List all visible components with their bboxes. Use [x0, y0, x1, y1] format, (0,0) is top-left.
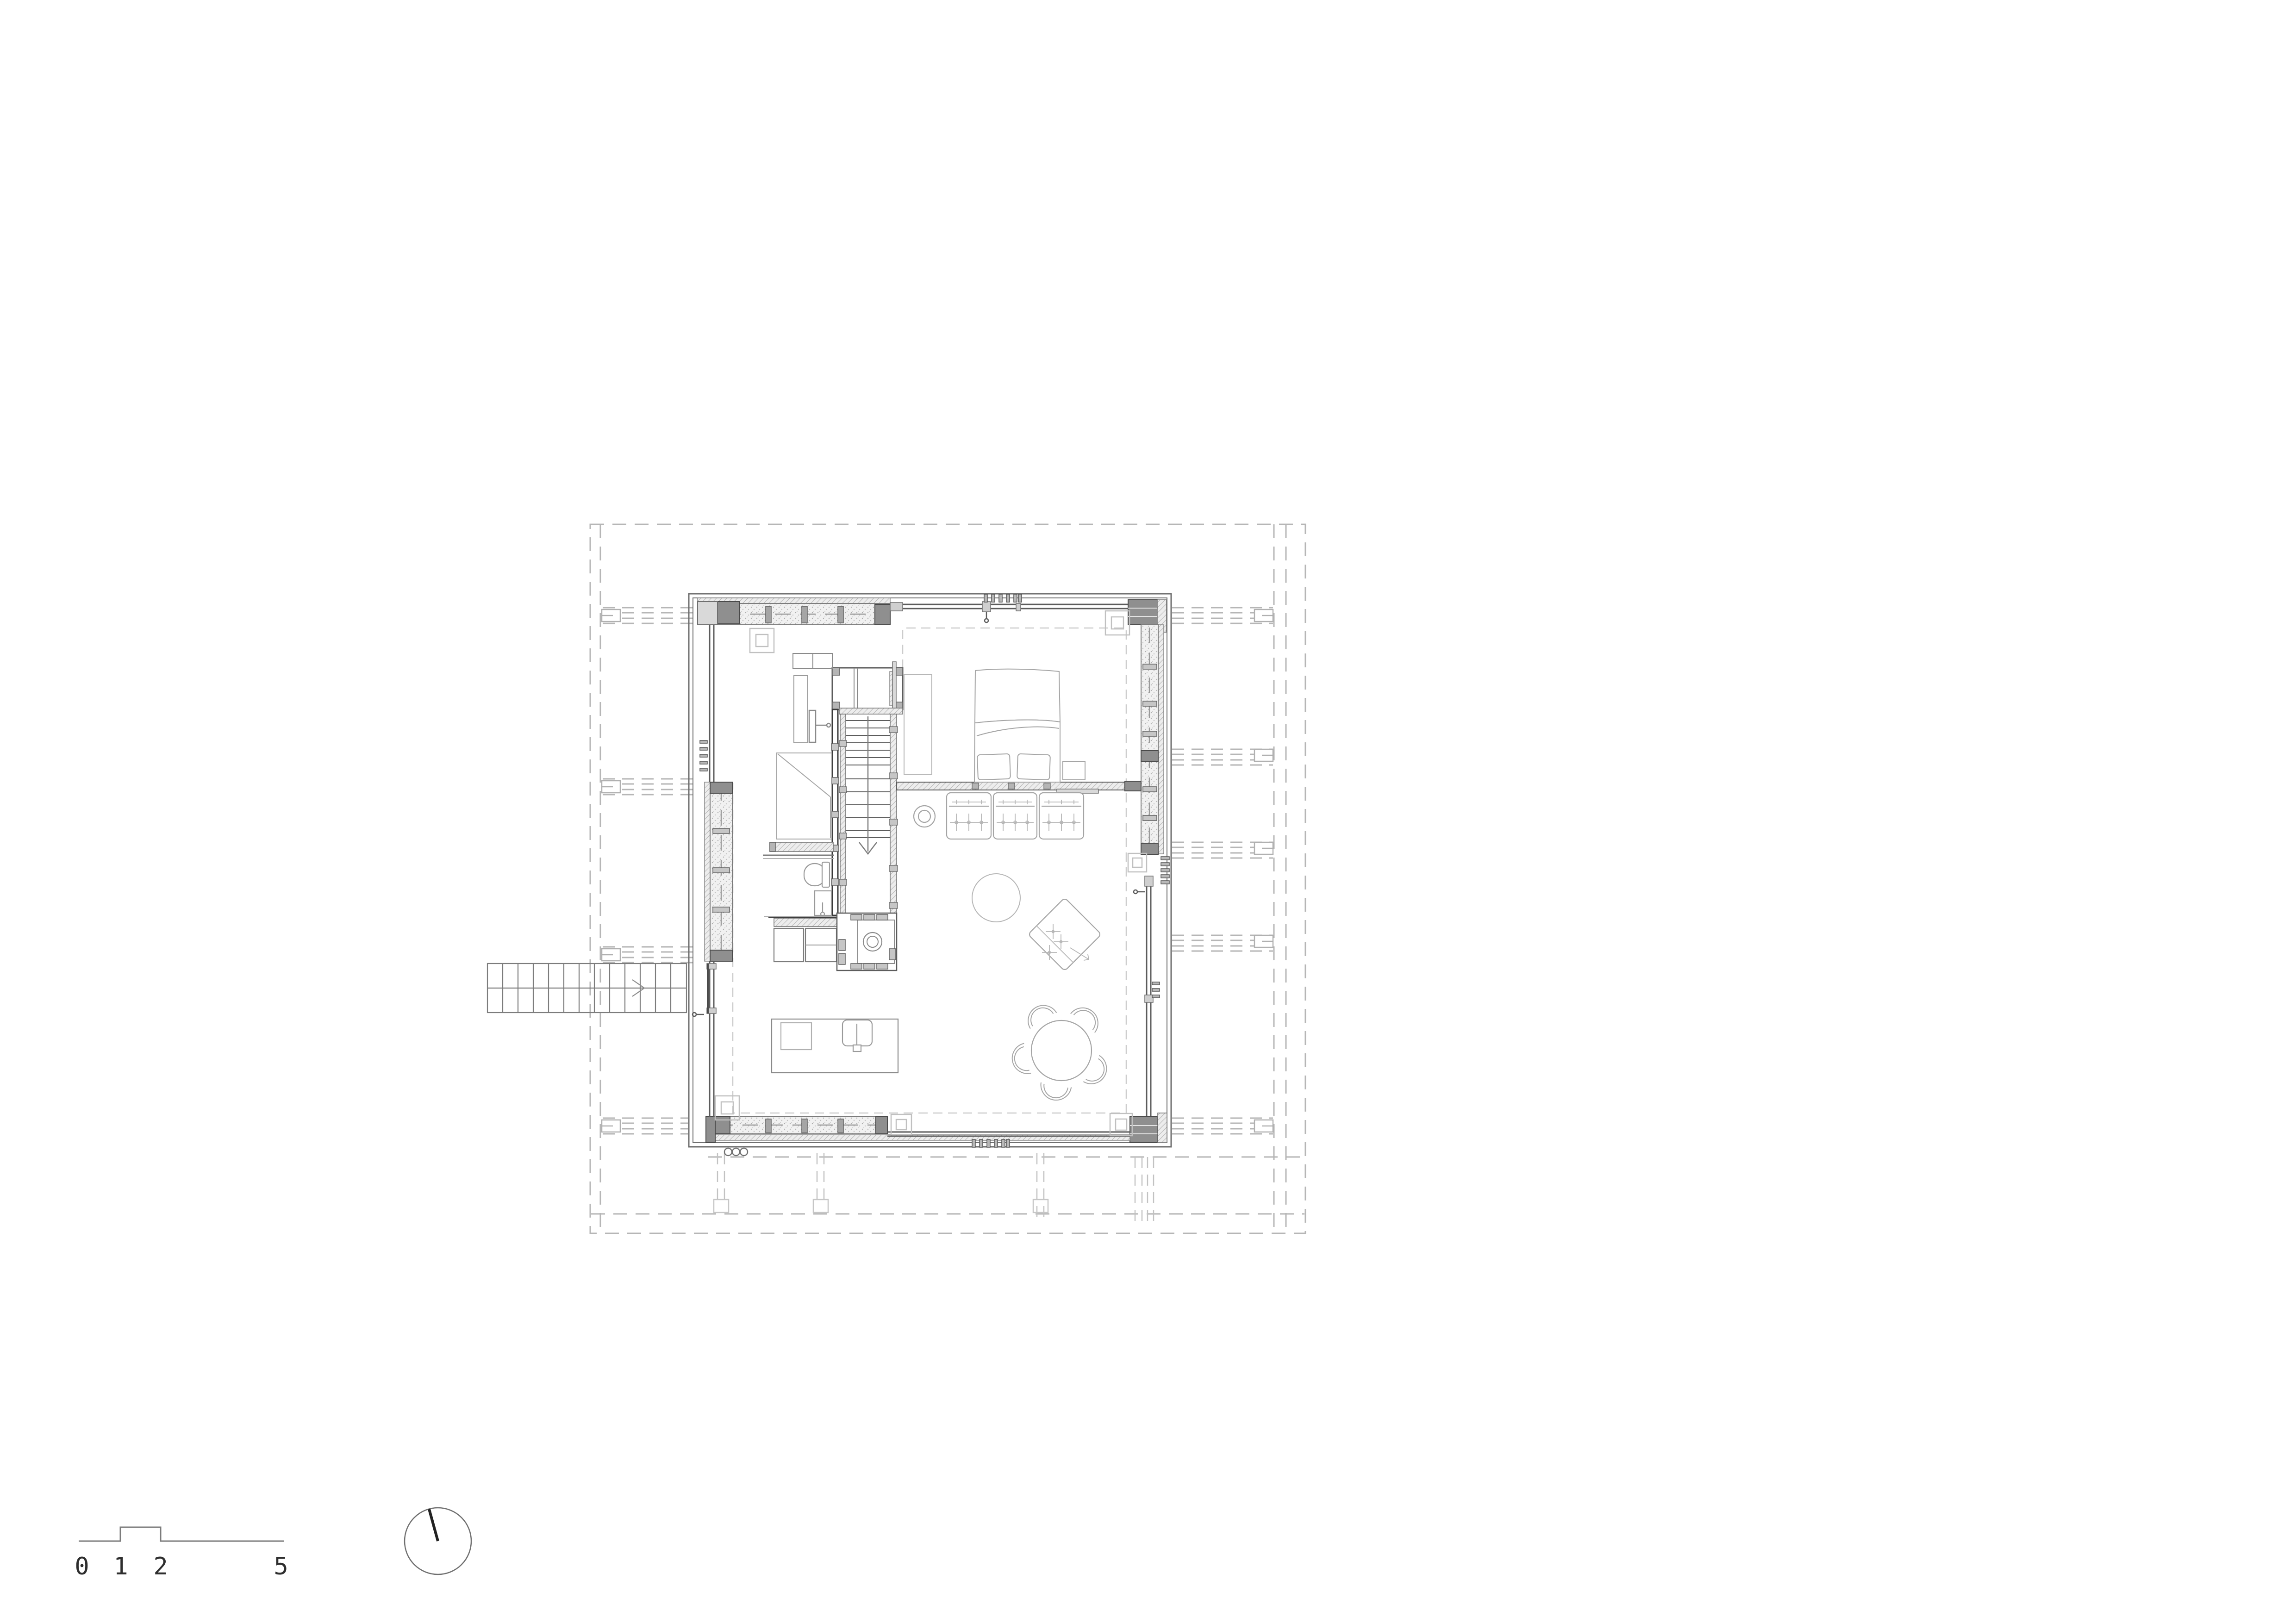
right-wall-cladding: [1158, 625, 1164, 854]
wall-stud: [839, 787, 847, 793]
wall-stud: [766, 606, 771, 623]
wall-stud: [839, 833, 847, 839]
wall-stud: [838, 606, 843, 623]
corner-block: [698, 602, 717, 625]
wall-stud: [1143, 731, 1157, 736]
window-jamb: [1145, 876, 1153, 886]
pillow: [977, 754, 1011, 780]
wall-stud: [1143, 815, 1157, 821]
work-table: [772, 1019, 898, 1073]
corner-assembly-sw: [706, 1117, 715, 1143]
nightstand: [1063, 761, 1085, 780]
wall-post: [710, 950, 732, 961]
wall-stud: [1143, 701, 1157, 706]
scale-label-1: 1: [113, 1553, 128, 1580]
wall-post: [1141, 751, 1158, 762]
stair-landing: [839, 708, 903, 714]
wall-stud: [831, 777, 839, 784]
window-jamb: [890, 603, 903, 611]
wardrobe: [832, 662, 903, 709]
wall-stud: [838, 1119, 843, 1133]
wall-stud: [831, 879, 839, 885]
wall-stud: [889, 819, 898, 825]
beam-box: [1254, 935, 1273, 947]
beam-box: [602, 949, 620, 961]
wall-stud: [831, 744, 839, 750]
corner-post: [717, 602, 740, 624]
beam-box: [602, 1120, 620, 1132]
wall-stud: [802, 606, 807, 623]
beam-box: [1254, 1120, 1273, 1132]
wall-stud: [831, 811, 839, 818]
wall-stud: [713, 907, 730, 912]
corner-assembly-se: [1130, 1113, 1167, 1143]
wall-stud: [889, 773, 898, 779]
wall-stud: [713, 868, 730, 873]
wall-stud: [839, 879, 847, 885]
beam-box: [1254, 842, 1273, 854]
wall-post: [876, 1117, 887, 1134]
kitchen-counter: [764, 916, 839, 962]
wall-post: [710, 782, 732, 793]
beam-box: [602, 781, 620, 793]
wall-stud: [713, 828, 730, 833]
vent-grille-right-low: [1152, 982, 1160, 998]
left-wall-cladding: [705, 782, 710, 961]
scale-label-0: 0: [75, 1553, 89, 1580]
wall-post: [1141, 843, 1158, 854]
beam-box: [1254, 609, 1273, 622]
wall-fin: [892, 662, 896, 708]
wall-stud: [1143, 787, 1157, 792]
bed-duvet: [975, 669, 1060, 723]
scale-label-2: 2: [153, 1553, 168, 1580]
wall-stud: [889, 727, 898, 733]
wall-stud: [766, 1119, 771, 1133]
scale-label-5: 5: [274, 1553, 288, 1580]
floor-plan-svg: 0 1 2 5: [0, 0, 2296, 1623]
toilet: [804, 862, 830, 887]
wall-stud: [802, 1119, 807, 1133]
wall-post: [875, 604, 890, 625]
beam-box: [602, 609, 620, 622]
beam-box: [1254, 749, 1273, 761]
sofa-three-seat: [947, 793, 1084, 839]
masonry-stove: [837, 913, 897, 970]
window-mullion: [1016, 603, 1021, 611]
wall-stud: [889, 865, 898, 871]
dining-table-round: [1031, 1020, 1092, 1081]
wall-stud: [889, 902, 898, 908]
wall-stud: [839, 740, 847, 746]
door-jamb: [982, 602, 991, 612]
wall-post: [715, 1117, 730, 1134]
pillow: [1017, 754, 1050, 780]
drawing-sheet: 0 1 2 5: [0, 0, 2296, 1623]
wall-stud: [1143, 664, 1157, 669]
